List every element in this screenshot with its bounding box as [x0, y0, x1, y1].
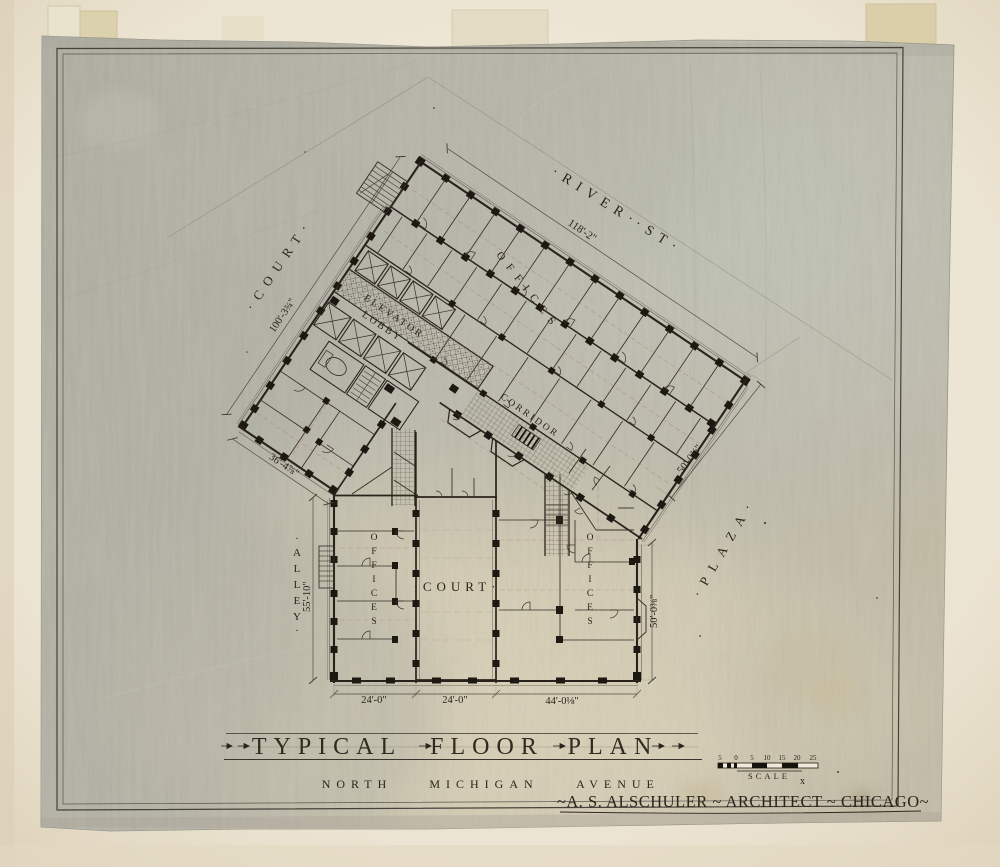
- svg-text:TYPICAL: TYPICAL: [252, 734, 402, 760]
- svg-text:F: F: [371, 547, 376, 557]
- svg-text:20: 20: [794, 754, 802, 762]
- svg-text:PLAN: PLAN: [568, 734, 659, 760]
- svg-text:~A. S. ALSCHULER ~ ARCHITECT ~: ~A. S. ALSCHULER ~ ARCHITECT ~ CHICAGO~: [557, 792, 929, 811]
- svg-text:F: F: [587, 561, 592, 571]
- svg-text:S: S: [371, 617, 376, 627]
- svg-text:Y: Y: [293, 611, 301, 623]
- svg-text:5: 5: [750, 754, 754, 762]
- svg-text:0: 0: [734, 754, 738, 762]
- svg-text:24'-0": 24'-0": [361, 695, 386, 706]
- svg-text:A: A: [293, 547, 301, 559]
- svg-text:E: E: [587, 603, 593, 613]
- svg-text:L: L: [294, 579, 301, 591]
- svg-text:F: F: [587, 547, 592, 557]
- svg-text:·: ·: [295, 533, 299, 545]
- svg-text:24'-0": 24'-0": [442, 695, 467, 706]
- svg-text:44'-0⅛": 44'-0⅛": [545, 696, 578, 707]
- svg-text:E: E: [294, 595, 301, 607]
- svg-text:10: 10: [764, 754, 772, 762]
- svg-text:x: x: [800, 776, 805, 787]
- svg-text:L: L: [294, 563, 301, 575]
- svg-text:SCALE: SCALE: [748, 771, 790, 781]
- svg-text:O: O: [587, 533, 594, 543]
- svg-text:MICHIGAN: MICHIGAN: [429, 777, 538, 791]
- svg-text:E: E: [371, 603, 377, 613]
- svg-text:5: 5: [718, 754, 722, 762]
- svg-text:C: C: [371, 589, 377, 599]
- svg-text:C: C: [587, 589, 593, 599]
- svg-text:S: S: [587, 617, 592, 627]
- svg-text:FLOOR: FLOOR: [430, 734, 544, 760]
- svg-text:F: F: [371, 561, 376, 571]
- svg-text:·COURT·: ·COURT·: [414, 579, 501, 594]
- svg-text:·: ·: [295, 625, 299, 637]
- svg-text:15: 15: [779, 754, 787, 762]
- svg-text:AVENUE: AVENUE: [576, 777, 660, 791]
- svg-text:55'-10": 55'-10": [302, 581, 313, 612]
- svg-text:25: 25: [810, 754, 818, 762]
- svg-text:50'-0⅜": 50'-0⅜": [649, 595, 660, 628]
- svg-text:O: O: [371, 533, 378, 543]
- svg-text:I: I: [588, 575, 591, 585]
- svg-text:NORTH: NORTH: [322, 777, 393, 791]
- svg-text:I: I: [372, 575, 375, 585]
